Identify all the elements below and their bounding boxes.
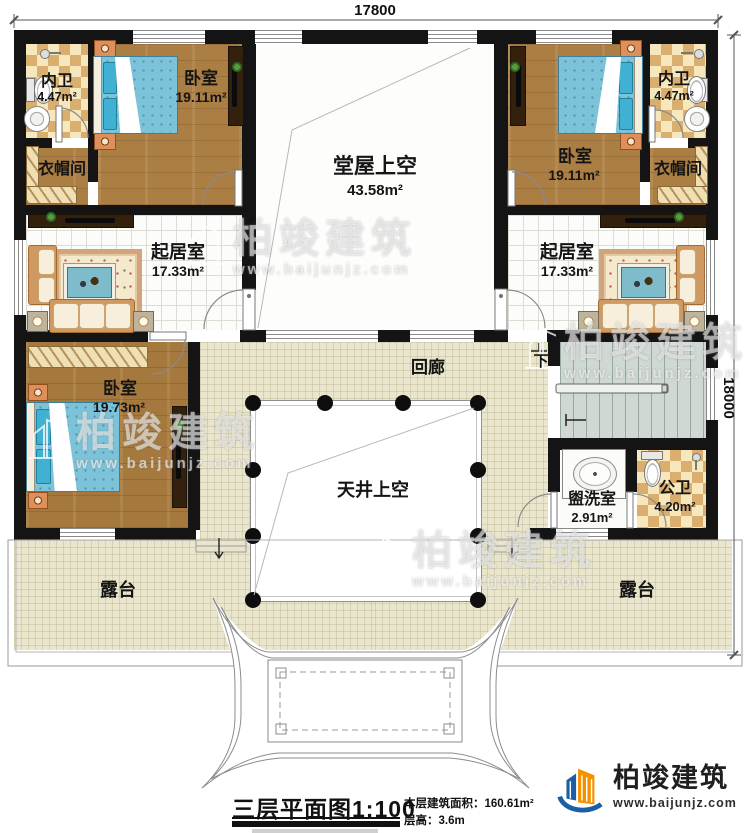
room-area-bath-tr: 4.47m² bbox=[640, 90, 708, 103]
room-label-courtyard-void: 天井上空 bbox=[328, 481, 418, 500]
nightstand bbox=[28, 492, 48, 509]
wall bbox=[205, 30, 255, 44]
column bbox=[470, 462, 486, 478]
nightstand bbox=[94, 133, 116, 150]
floor-height-label: 层高： bbox=[404, 815, 439, 827]
pillow bbox=[103, 62, 117, 94]
armchair bbox=[28, 245, 57, 305]
window bbox=[14, 240, 26, 315]
armchair bbox=[676, 245, 705, 305]
floor-height-line: 层高：3.6m bbox=[404, 813, 534, 830]
company-logo-icon bbox=[552, 760, 606, 814]
room-label-bedroom-tl: 卧室 bbox=[163, 70, 239, 88]
dimension-right: 18000 bbox=[721, 368, 737, 428]
bed-sheet bbox=[115, 57, 141, 133]
room-label-bath-tl: 内卫 bbox=[27, 74, 87, 91]
cushion bbox=[654, 303, 680, 329]
shower-faucet-icon bbox=[694, 49, 704, 59]
cushion bbox=[105, 303, 131, 329]
wall bbox=[14, 528, 60, 540]
pillow bbox=[619, 98, 633, 130]
company-logo: 柏竣建筑 www.baijunjz.com bbox=[552, 760, 737, 814]
pillow bbox=[36, 449, 51, 484]
bed-sheet bbox=[595, 57, 621, 133]
tv-cabinet bbox=[600, 214, 707, 228]
column bbox=[470, 592, 486, 608]
wall bbox=[240, 330, 266, 342]
wall bbox=[608, 528, 718, 540]
faucet-hose bbox=[695, 460, 697, 470]
window bbox=[255, 30, 302, 44]
wall bbox=[625, 450, 637, 492]
sink-icon bbox=[684, 106, 710, 132]
side-table-lamp bbox=[684, 311, 705, 332]
nightstand bbox=[28, 384, 48, 401]
courtyard-void-area bbox=[250, 400, 482, 602]
room-area-hall-void: 43.58m² bbox=[303, 183, 447, 199]
sink-icon bbox=[24, 106, 50, 132]
floor-area-value: 160.61m² bbox=[485, 798, 534, 810]
window bbox=[428, 30, 477, 44]
window bbox=[706, 240, 718, 315]
column bbox=[317, 395, 333, 411]
cushion bbox=[628, 303, 654, 329]
tv bbox=[625, 218, 675, 223]
cushion bbox=[602, 303, 628, 329]
sofa bbox=[598, 299, 684, 333]
tv bbox=[65, 218, 115, 223]
room-label-cloak-tl: 衣帽间 bbox=[25, 162, 99, 179]
room-area-living-l: 17.33m² bbox=[132, 264, 224, 279]
hall-railing-window bbox=[266, 330, 378, 342]
column bbox=[245, 395, 261, 411]
wall bbox=[115, 528, 196, 540]
shower-faucet-icon bbox=[40, 49, 50, 59]
room-area-bedroom-tr: 19.11m² bbox=[528, 168, 620, 183]
nightstand bbox=[620, 133, 642, 150]
bed bbox=[558, 56, 643, 134]
room-label-bedroom-bl: 卧室 bbox=[82, 380, 158, 398]
room-area-washroom: 2.91m² bbox=[556, 511, 628, 525]
window bbox=[536, 30, 612, 44]
floor-plan-page: 柏竣建筑 www.baijunjz.com 柏竣建筑 www.baijunjz.… bbox=[0, 0, 750, 833]
cloak-shelving bbox=[657, 186, 708, 204]
title-underline-shadow bbox=[252, 829, 378, 833]
tv bbox=[176, 435, 181, 479]
logo-company-name: 柏竣建筑 bbox=[613, 765, 737, 792]
coffee-table bbox=[67, 267, 112, 298]
window bbox=[60, 528, 115, 540]
wall bbox=[706, 30, 718, 240]
dimension-top: 17800 bbox=[332, 2, 418, 19]
side-table-lamp bbox=[578, 311, 599, 332]
cushion bbox=[38, 249, 55, 275]
window bbox=[556, 528, 608, 540]
floor-staircase bbox=[560, 342, 706, 438]
window bbox=[706, 368, 718, 420]
wall bbox=[706, 420, 718, 540]
tv-cabinet bbox=[510, 46, 526, 126]
wash-basin-inner bbox=[579, 462, 611, 486]
bed bbox=[26, 402, 120, 492]
title-info: 本层建筑面积：160.61m² 层高：3.6m bbox=[404, 796, 534, 829]
room-area-bedroom-tl: 19.11m² bbox=[155, 90, 247, 105]
room-label-terrace-l: 露台 bbox=[94, 581, 142, 600]
cushion bbox=[79, 303, 105, 329]
room-label-washroom: 盥洗室 bbox=[554, 492, 630, 509]
room-label-terrace-r: 露台 bbox=[613, 581, 661, 600]
bed-headboard bbox=[94, 57, 102, 133]
column bbox=[470, 528, 486, 544]
room-area-bath-tl: 4.47m² bbox=[23, 91, 91, 104]
plant-icon bbox=[46, 212, 56, 222]
floor-area-label: 本层建筑面积： bbox=[404, 798, 485, 810]
room-label-corridor: 回廊 bbox=[404, 359, 452, 377]
wall bbox=[378, 330, 410, 342]
room-area-public-bath: 4.20m² bbox=[645, 500, 705, 514]
floor-height-value: 3.6m bbox=[439, 815, 465, 827]
cushion bbox=[53, 303, 79, 329]
room-label-hall-void: 堂屋上空 bbox=[303, 156, 447, 178]
title-underline bbox=[232, 817, 400, 819]
hall-railing-window bbox=[410, 330, 474, 342]
sofa bbox=[49, 299, 135, 333]
room-label-living-l: 起居室 bbox=[134, 243, 222, 262]
plant-icon bbox=[674, 212, 684, 222]
wall bbox=[530, 528, 556, 540]
coffee-table bbox=[621, 267, 666, 298]
side-table-lamp bbox=[27, 311, 48, 332]
room-area-bedroom-bl: 19.73m² bbox=[73, 400, 165, 415]
wardrobe bbox=[28, 346, 148, 368]
window bbox=[133, 30, 205, 44]
pillow bbox=[36, 409, 51, 445]
wall bbox=[14, 30, 26, 240]
room-area-living-r: 17.33m² bbox=[521, 264, 613, 279]
room-label-cloak-tr: 衣帽间 bbox=[641, 162, 715, 179]
wall bbox=[242, 44, 256, 290]
plant-icon bbox=[174, 420, 184, 430]
nightstand bbox=[94, 40, 116, 57]
wall bbox=[548, 445, 560, 492]
plant-icon bbox=[510, 62, 520, 72]
cloak-shelving bbox=[26, 186, 77, 204]
column bbox=[245, 528, 261, 544]
pillow bbox=[103, 98, 117, 130]
column bbox=[245, 462, 261, 478]
wall bbox=[302, 30, 428, 44]
floor-area-line: 本层建筑面积：160.61m² bbox=[404, 796, 534, 813]
wall bbox=[474, 330, 508, 342]
shower-hose bbox=[49, 52, 61, 54]
column bbox=[395, 395, 411, 411]
room-label-bedroom-tr: 卧室 bbox=[537, 148, 613, 166]
bed-sheet bbox=[49, 403, 77, 491]
wall bbox=[188, 342, 200, 530]
pillow bbox=[619, 62, 633, 94]
bed-headboard bbox=[27, 403, 35, 491]
room-label-bath-tr: 内卫 bbox=[644, 72, 704, 89]
title-underline-bar bbox=[232, 821, 400, 827]
wall bbox=[14, 315, 26, 540]
wall bbox=[494, 44, 508, 290]
logo-website: www.baijunjz.com bbox=[613, 796, 737, 810]
stair-down-label: 下 bbox=[531, 354, 551, 370]
column bbox=[245, 592, 261, 608]
courtyard-inner-line bbox=[255, 405, 477, 597]
side-table-lamp bbox=[133, 311, 154, 332]
column bbox=[470, 395, 486, 411]
room-label-living-r: 起居室 bbox=[523, 243, 611, 262]
cushion bbox=[679, 249, 696, 275]
shower-hose bbox=[681, 52, 693, 54]
room-label-public-bath: 公卫 bbox=[649, 481, 701, 498]
tv-cabinet bbox=[28, 214, 134, 228]
nightstand bbox=[620, 40, 642, 57]
wall bbox=[477, 30, 536, 44]
